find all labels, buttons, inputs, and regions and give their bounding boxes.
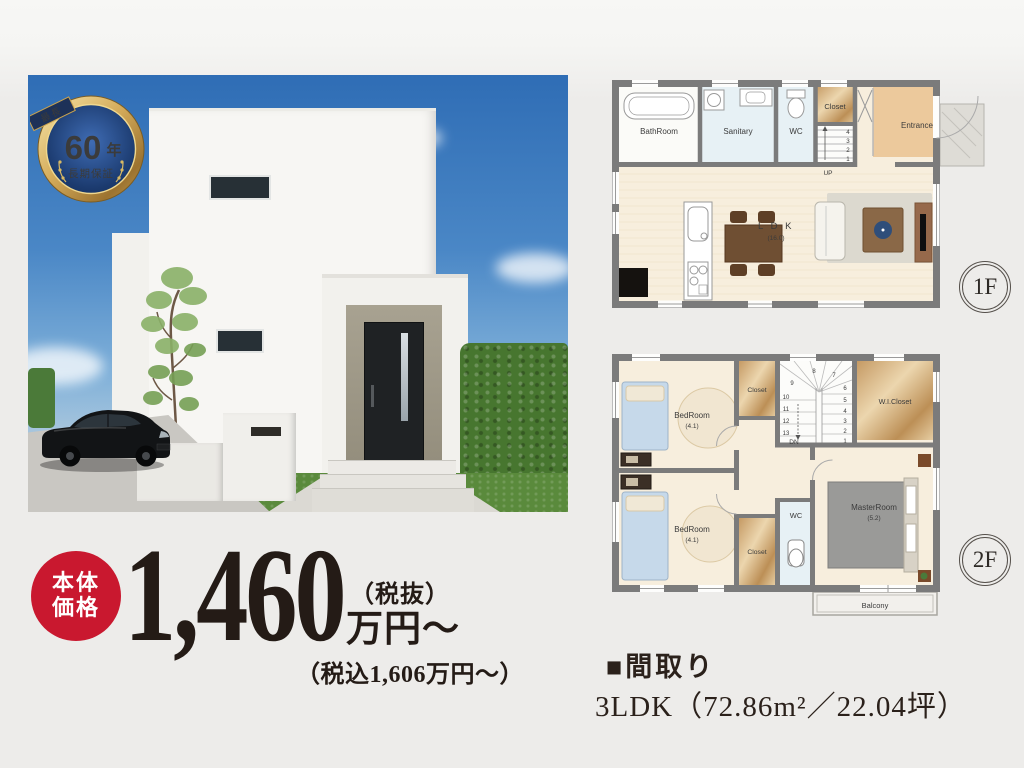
door-glass-slit [401, 333, 408, 421]
stair-number: 3 [846, 138, 850, 145]
price-badge-line2: 価格 [52, 596, 100, 621]
label-master: MasterRoom [851, 503, 897, 512]
flyer-canvas: 60 年 長期保証 最長 本体 価格 1,460 （税抜） 万円〜 （税込1,6… [0, 0, 1024, 768]
label-closet-top: Closet [747, 387, 766, 394]
label-balcony: Balcony [862, 601, 889, 610]
stair-number: 12 [783, 419, 790, 425]
label-entrance: Entrance [901, 121, 934, 130]
floor-2f-badge: 2F [962, 537, 1008, 583]
stair-number: 1 [846, 156, 850, 163]
label-closet: Closet [824, 102, 846, 111]
label-bathroom: BathRoom [640, 127, 678, 136]
entrance-step [320, 474, 466, 489]
label-ldk-size: (16.0) [768, 235, 785, 242]
refrigerator [619, 268, 648, 297]
mail-slot [251, 427, 281, 436]
black-car [34, 391, 174, 475]
madori-heading: ■間取り [606, 645, 715, 684]
label-wc: WC [790, 511, 803, 520]
price-badge-line1: 本体 [52, 571, 100, 596]
porch-area [940, 104, 984, 166]
price-tax-included: （税込1,606万円〜） [296, 654, 524, 689]
medal-number: 60 [65, 129, 102, 166]
price-amount: 1,460 [124, 528, 344, 662]
label-bedroom-bottom: BedRoom [674, 525, 710, 534]
tv [920, 214, 926, 251]
master-bed [828, 482, 904, 568]
price-badge: 本体 価格 [31, 551, 121, 641]
medal-caption: 長期保証 [68, 167, 114, 180]
mailbox-wall [223, 413, 296, 501]
label-up: UP [823, 170, 832, 177]
label-wc: WC [789, 127, 803, 136]
floor-1f-badge-text: 1F [973, 274, 997, 300]
floorplan-2f: BedRoom (4.1) Closet W.I.Closet BedRoom … [612, 352, 940, 618]
floor-2f-badge-text: 2F [973, 547, 997, 573]
toilet-bowl [788, 98, 804, 118]
sofa [815, 202, 845, 260]
stair-number: 4 [846, 129, 850, 136]
entrance-step [328, 460, 456, 475]
label-wi-closet: W.I.Closet [879, 397, 912, 406]
stair-number: 13 [783, 431, 790, 437]
stair-number: 10 [783, 395, 790, 401]
door-handle [371, 385, 374, 407]
label-sanitary: Sanitary [723, 127, 752, 136]
entrance-step [312, 488, 474, 512]
label-master-size: (5.2) [867, 515, 880, 522]
madori-spec: 3LDK（72.86m²／22.04坪） [595, 683, 967, 725]
warranty-medal: 60 年 長期保証 最長 [30, 88, 146, 204]
label-bedroom-bottom-size: (4.1) [685, 537, 698, 544]
floor-1f-badge: 1F [962, 264, 1008, 310]
price-unit: 万円〜 [346, 598, 460, 652]
label-ldk: L D K [758, 221, 794, 232]
toilet-tank [787, 90, 805, 98]
label-bedroom-top-size: (4.1) [685, 423, 698, 430]
floorplan-1f: BathRoom Sanitary WC Closet Entrance 4 3… [612, 78, 988, 310]
label-dn: DN [789, 439, 799, 446]
upper-window [209, 175, 271, 200]
round-rug [682, 506, 738, 562]
front-door [364, 322, 424, 476]
cloud [496, 253, 568, 283]
medal-unit: 年 [106, 141, 121, 159]
vanity [740, 89, 772, 106]
stair-number: 11 [783, 407, 790, 413]
label-closet-bottom: Closet [747, 549, 766, 556]
label-bedroom-top: BedRoom [674, 411, 710, 420]
house-photo: 60 年 長期保証 最長 [28, 75, 568, 512]
stair-number: 2 [846, 147, 850, 154]
side-table [918, 454, 931, 467]
